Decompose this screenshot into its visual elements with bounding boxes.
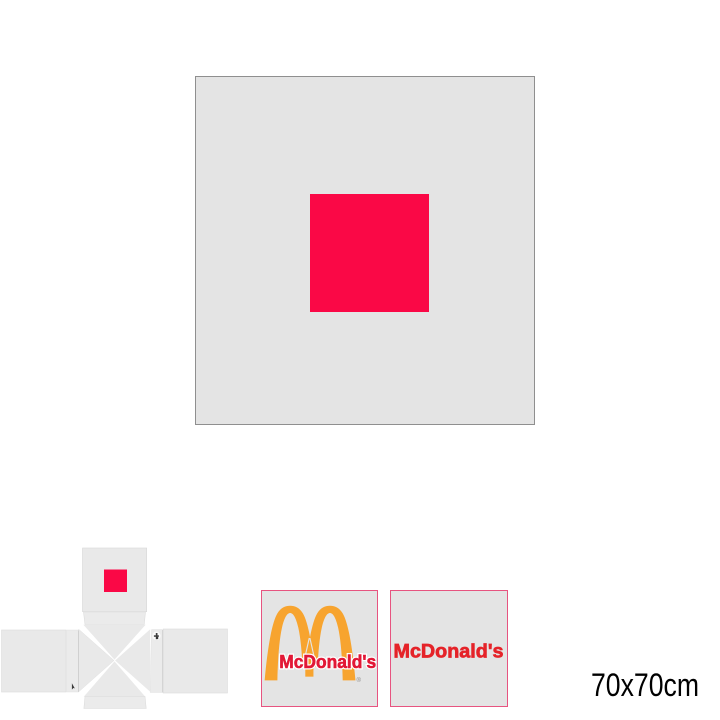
svg-text:70x70cm: 70x70cm (591, 667, 699, 703)
svg-text:McDonald's: McDonald's (394, 641, 504, 663)
svg-text:McDonald's: McDonald's (279, 651, 376, 672)
svg-text:®: ® (357, 677, 362, 684)
